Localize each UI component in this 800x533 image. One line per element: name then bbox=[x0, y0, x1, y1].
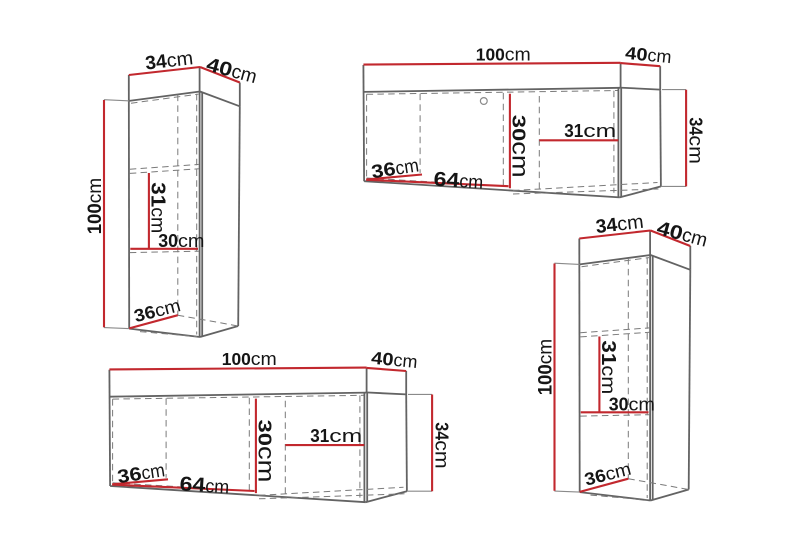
svg-text:36: 36 bbox=[370, 159, 397, 183]
svg-text:100: 100 bbox=[534, 364, 556, 395]
svg-text:31: 31 bbox=[146, 182, 168, 207]
svg-text:34: 34 bbox=[595, 215, 619, 238]
svg-text:cm: cm bbox=[508, 141, 534, 178]
svg-text:31: 31 bbox=[310, 426, 329, 446]
svg-text:cm: cm bbox=[535, 339, 556, 365]
svg-text:30: 30 bbox=[254, 420, 275, 447]
svg-text:cm: cm bbox=[205, 476, 230, 498]
svg-text:cm: cm bbox=[254, 446, 280, 483]
svg-text:100: 100 bbox=[84, 203, 106, 234]
svg-text:34: 34 bbox=[144, 51, 168, 74]
svg-text:cm: cm bbox=[684, 135, 706, 164]
svg-text:cm: cm bbox=[394, 155, 420, 179]
svg-text:40: 40 bbox=[624, 43, 648, 65]
svg-text:cm: cm bbox=[583, 121, 616, 141]
svg-text:100: 100 bbox=[476, 44, 505, 64]
svg-text:cm: cm bbox=[647, 45, 673, 67]
svg-text:cm: cm bbox=[85, 178, 106, 204]
svg-text:cm: cm bbox=[166, 48, 195, 72]
svg-text:31: 31 bbox=[564, 121, 583, 141]
svg-text:cm: cm bbox=[329, 426, 362, 446]
svg-text:64: 64 bbox=[179, 473, 207, 497]
svg-text:cm: cm bbox=[251, 348, 277, 369]
svg-text:34: 34 bbox=[430, 422, 451, 440]
svg-text:cm: cm bbox=[393, 350, 419, 372]
svg-text:cm: cm bbox=[629, 393, 656, 414]
svg-text:40: 40 bbox=[370, 348, 394, 370]
svg-text:30: 30 bbox=[609, 393, 629, 414]
svg-text:34: 34 bbox=[684, 117, 705, 135]
svg-text:cm: cm bbox=[430, 440, 452, 469]
svg-text:cm: cm bbox=[597, 365, 618, 394]
svg-text:30: 30 bbox=[158, 230, 178, 251]
svg-text:cm: cm bbox=[140, 460, 166, 484]
svg-text:30: 30 bbox=[508, 115, 529, 142]
svg-text:cm: cm bbox=[178, 230, 205, 251]
svg-text:cm: cm bbox=[616, 212, 645, 236]
svg-text:cm: cm bbox=[459, 171, 484, 193]
svg-text:64: 64 bbox=[433, 169, 461, 193]
svg-text:31: 31 bbox=[597, 340, 619, 365]
svg-text:cm: cm bbox=[505, 43, 531, 64]
svg-text:100: 100 bbox=[222, 349, 251, 369]
svg-text:36: 36 bbox=[116, 464, 143, 488]
